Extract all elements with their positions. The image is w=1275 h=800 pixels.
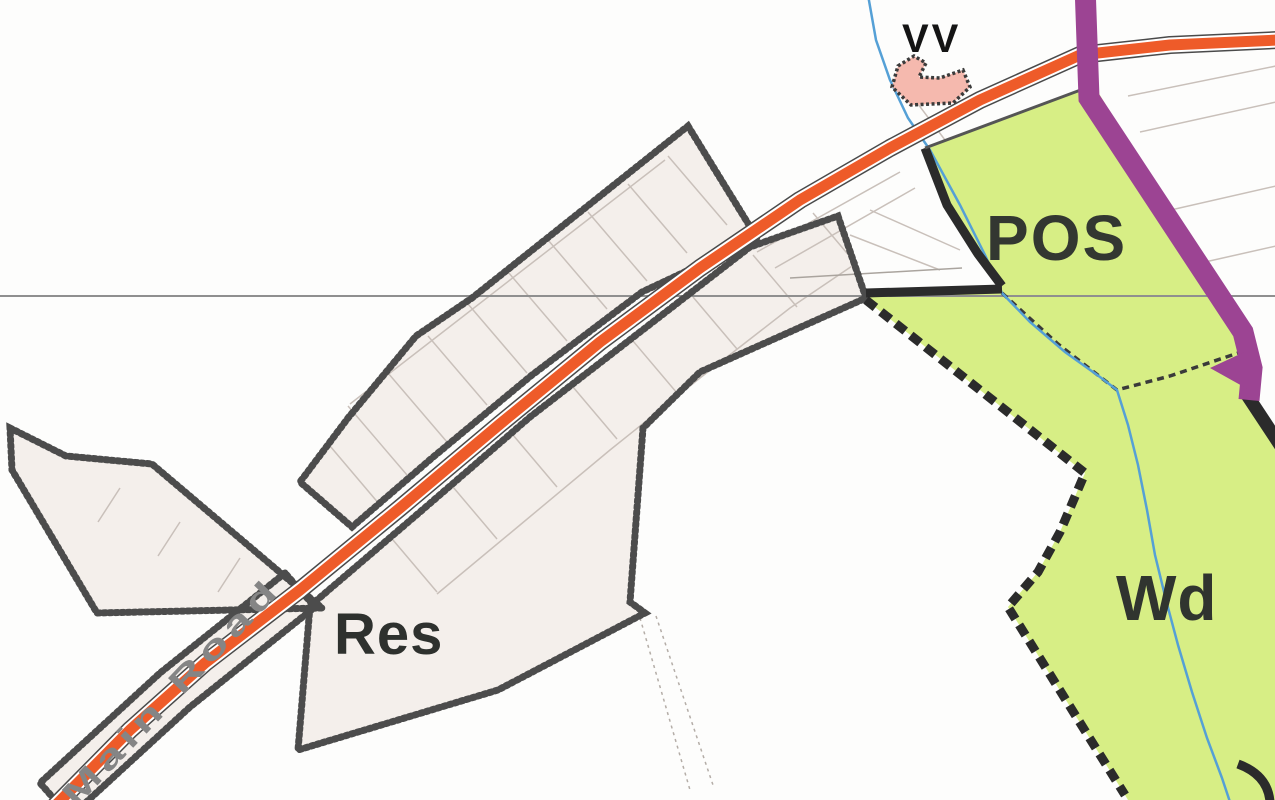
proposals-map: VV POS Wd Res Main Road <box>0 0 1275 800</box>
map-canvas: VV POS Wd Res Main Road <box>0 0 1275 800</box>
boundary-marks-label: VV <box>902 17 961 61</box>
zone-label-wd: Wd <box>1116 562 1218 634</box>
zone-label-res: Res <box>334 602 443 667</box>
zone-label-pos: POS <box>986 202 1127 274</box>
